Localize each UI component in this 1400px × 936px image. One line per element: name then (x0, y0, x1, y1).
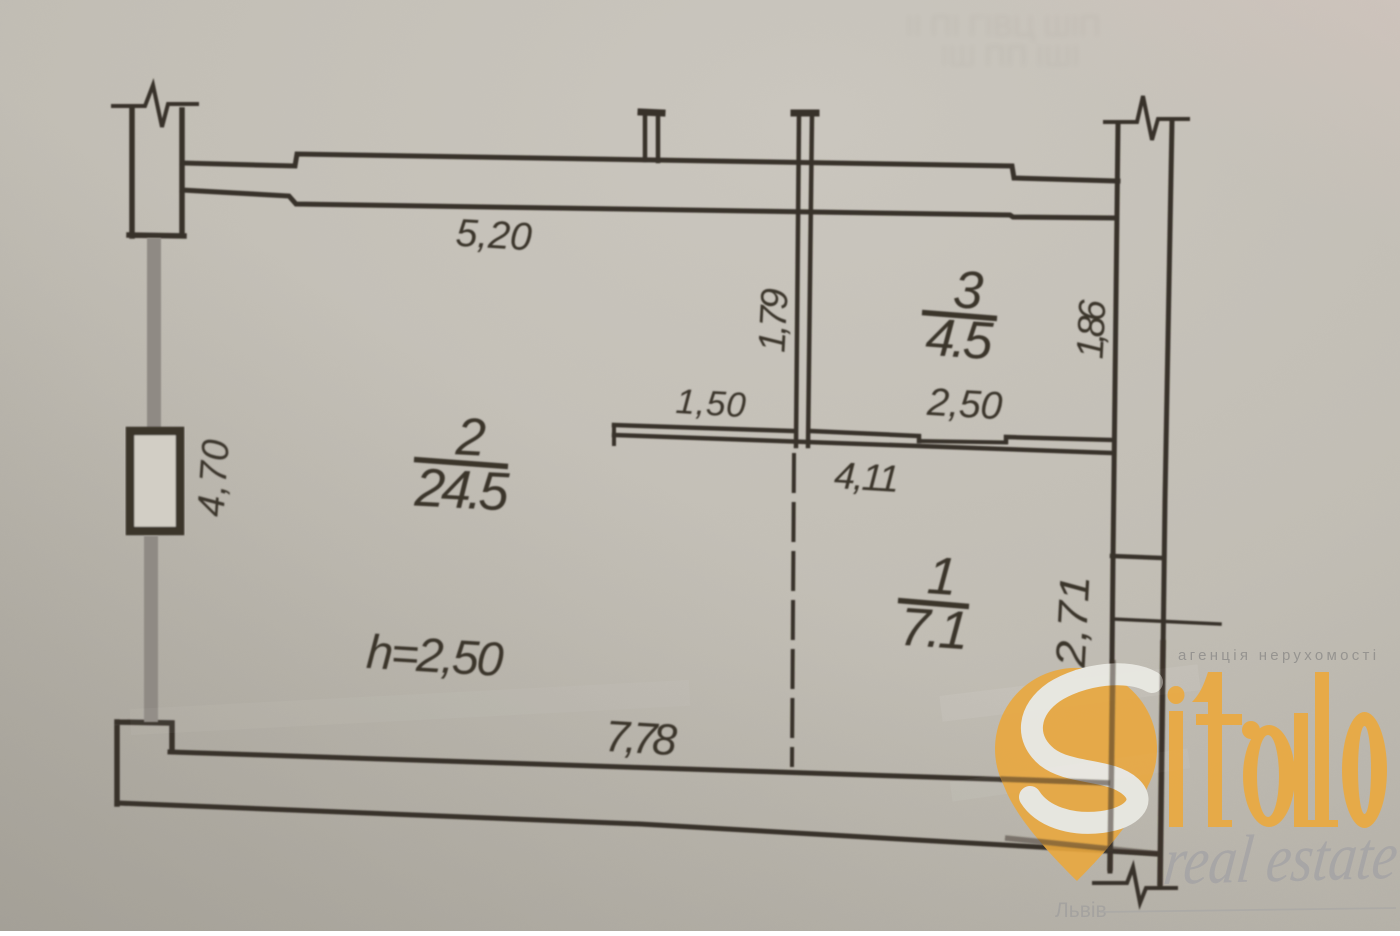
svg-text:4,11: 4,11 (833, 455, 900, 501)
svg-text:Львів: Львів (1055, 899, 1107, 922)
svg-text:2: 2 (454, 407, 488, 468)
svg-text:24.5: 24.5 (412, 458, 511, 523)
svg-text:1,79: 1,79 (751, 287, 796, 353)
svg-text:ІІ ПІ ГІВЦ ШІП: ІІ ПІ ГІВЦ ШІП (905, 10, 1101, 43)
svg-text:2,50: 2,50 (925, 381, 1004, 429)
svg-text:1,50: 1,50 (675, 382, 748, 425)
svg-text:4.5: 4.5 (924, 308, 995, 372)
svg-text:7.1: 7.1 (898, 597, 971, 662)
svg-text:агенція нерухомості: агенція нерухомості (1178, 647, 1379, 664)
svg-text:7,78: 7,78 (603, 712, 678, 765)
svg-text:real estate: real estate (1160, 817, 1400, 899)
svg-text:ІШ ПП ІШІ: ІШ ПП ІШІ (940, 40, 1080, 73)
svg-text:2,71: 2,71 (1047, 574, 1099, 669)
svg-text:4,70: 4,70 (190, 438, 237, 518)
svg-text:h=2,50: h=2,50 (365, 626, 505, 687)
svg-text:5,20: 5,20 (455, 212, 534, 260)
svg-text:1,86: 1,86 (1070, 298, 1115, 360)
